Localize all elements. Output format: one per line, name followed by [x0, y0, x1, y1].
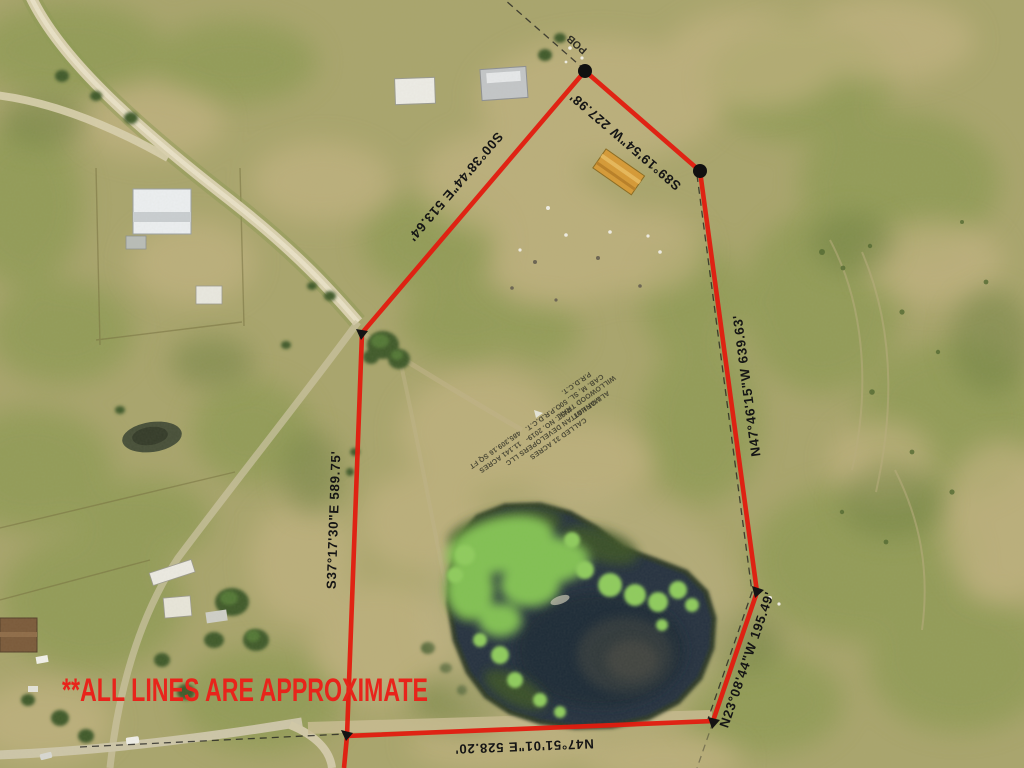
disclaimer: **ALL LINES ARE APPROXIMATE: [62, 671, 428, 708]
aerial-survey-image: S89°19'54"W 227.98' S00°38'44"E 513.64' …: [0, 0, 1024, 768]
disclaimer-text: **ALL LINES ARE APPROXIMATE: [62, 671, 428, 708]
corner-marker-pob: [578, 64, 592, 78]
aerial-photo-svg: S89°19'54"W 227.98' S00°38'44"E 513.64' …: [0, 0, 1024, 768]
corner-marker: [693, 164, 707, 178]
photo-grain: [0, 0, 1024, 768]
